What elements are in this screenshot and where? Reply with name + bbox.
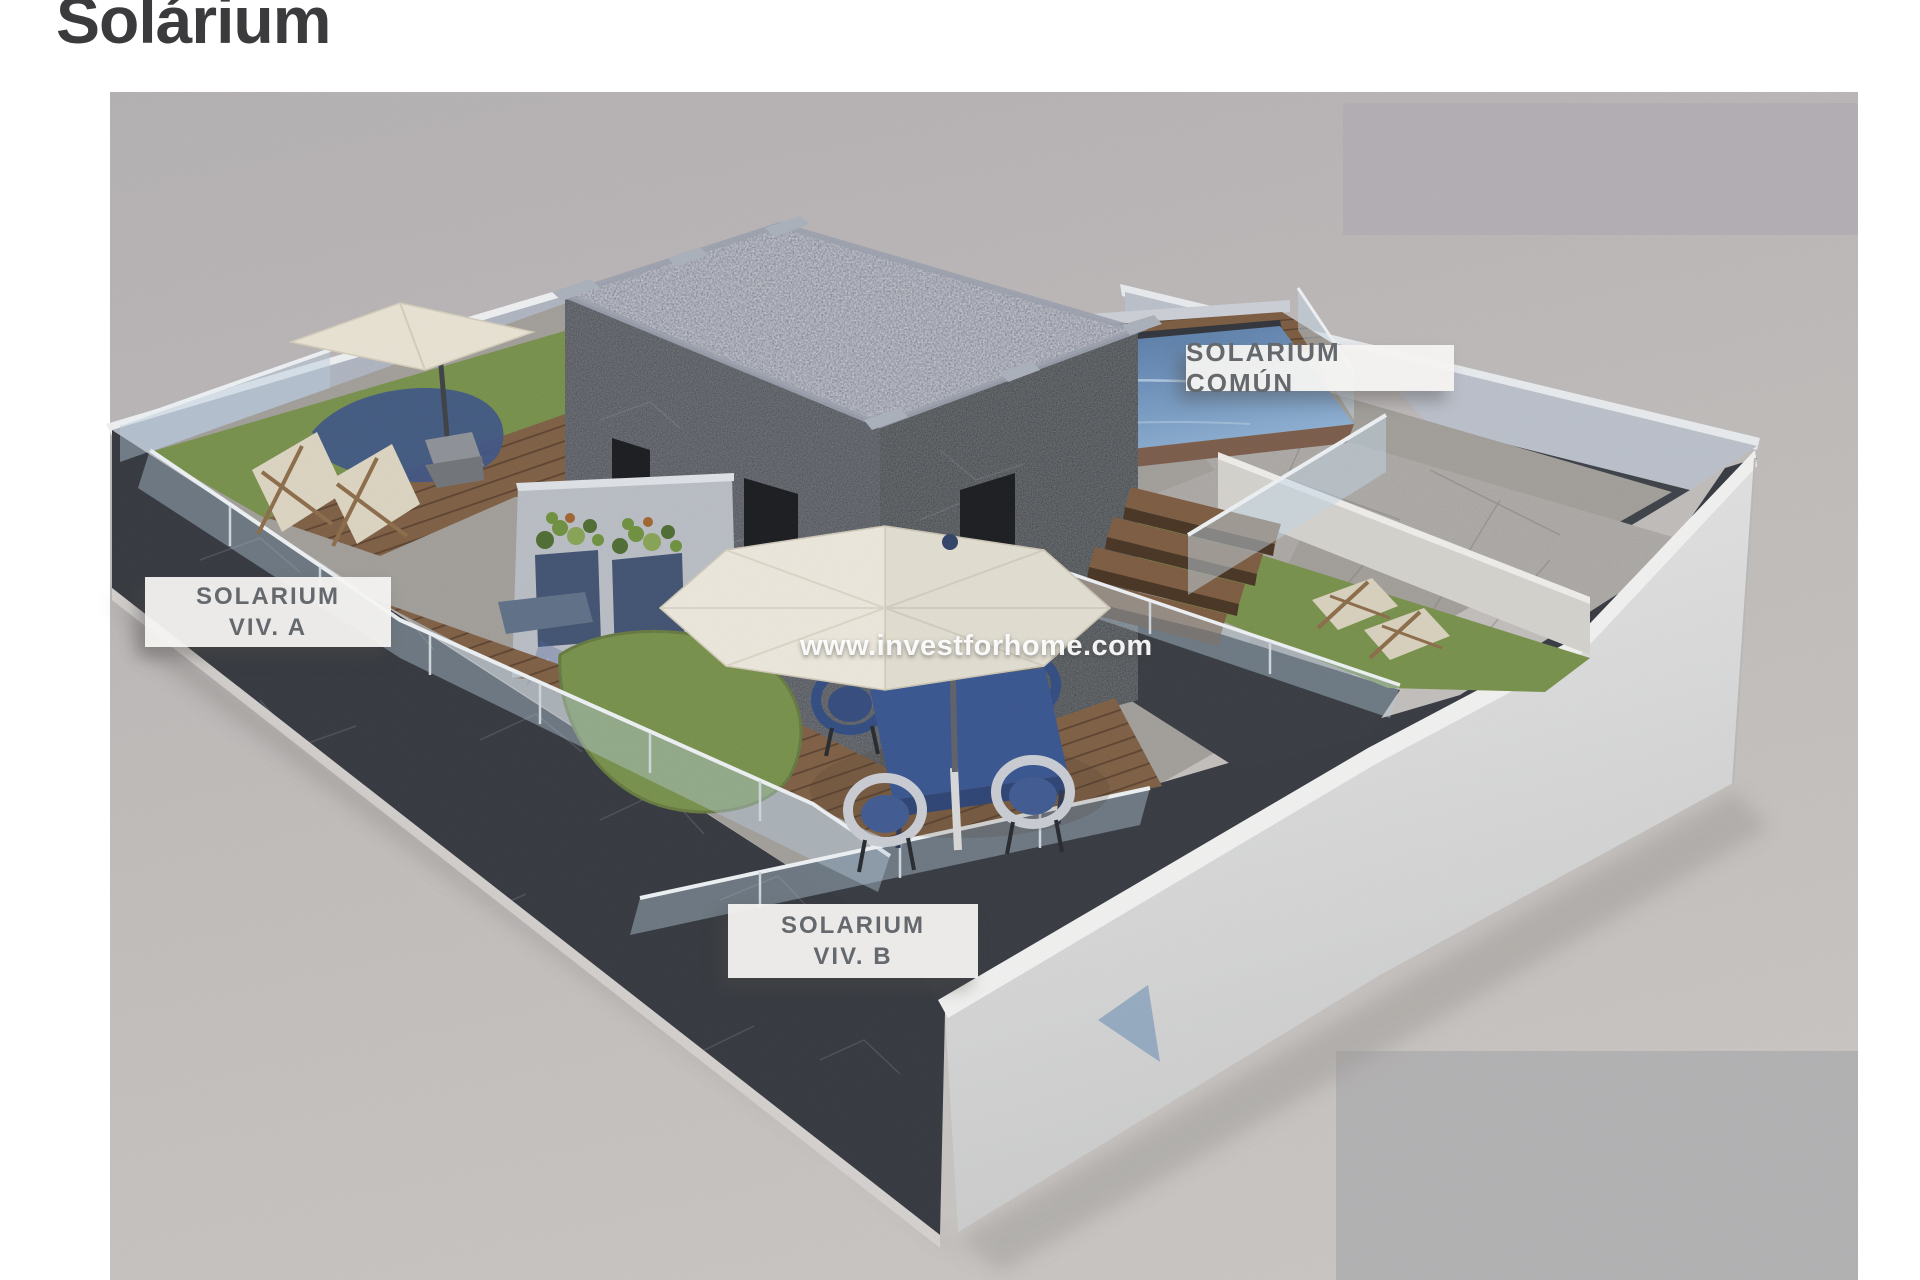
label-viv-a-line1: SOLARIUM: [196, 581, 340, 612]
label-solarium-comun-text: SOLARIUM COMÚN: [1186, 337, 1454, 399]
photo-grain: [110, 92, 1858, 1280]
label-solarium-viv-a: SOLARIUM VIV. A: [145, 577, 391, 647]
label-solarium-comun: SOLARIUM COMÚN: [1186, 345, 1454, 391]
page: Solárium: [0, 0, 1920, 1280]
label-solarium-viv-b: SOLARIUM VIV. B: [728, 904, 978, 978]
label-viv-a-line2: VIV. A: [229, 612, 307, 643]
label-viv-b-line1: SOLARIUM: [781, 910, 925, 941]
watermark: www.investforhome.com: [800, 630, 1130, 663]
render-photo: www.investforhome.com: [110, 92, 1858, 1280]
label-viv-b-line2: VIV. B: [813, 941, 892, 972]
